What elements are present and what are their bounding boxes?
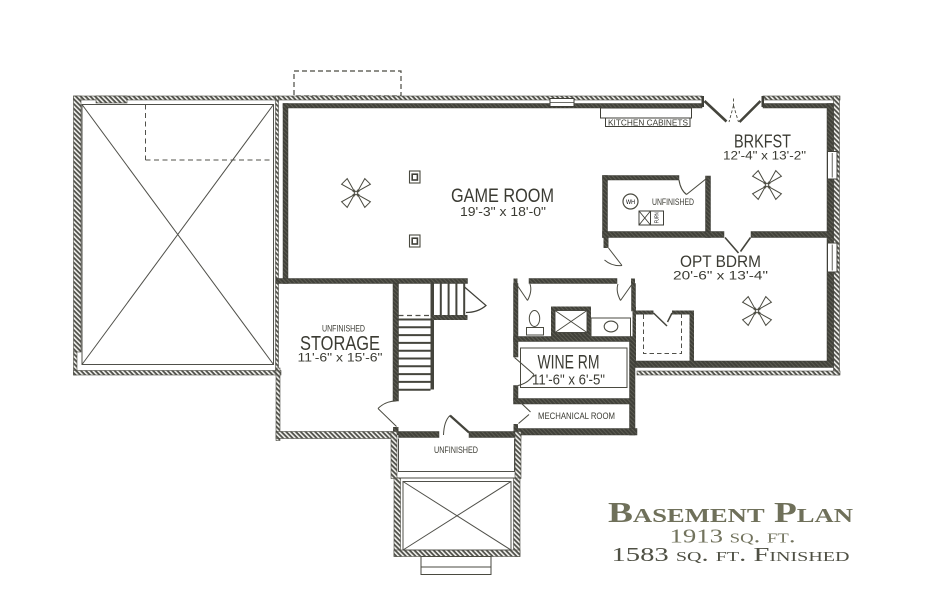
svg-text:MECHANICAL ROOM: MECHANICAL ROOM bbox=[538, 411, 615, 422]
svg-text:19'-3" x 18'-0": 19'-3" x 18'-0" bbox=[460, 204, 546, 219]
svg-text:WINE RM: WINE RM bbox=[538, 352, 600, 374]
svg-text:WH: WH bbox=[626, 200, 635, 206]
svg-text:UNFINISHED: UNFINISHED bbox=[434, 445, 478, 455]
svg-text:11'-6" x 6'-5": 11'-6" x 6'-5" bbox=[532, 372, 605, 389]
svg-text:BRKFST: BRKFST bbox=[734, 132, 791, 152]
svg-text:1583 sq. ft. Finished: 1583 sq. ft. Finished bbox=[612, 544, 850, 566]
svg-text:12'-4" x 13'-2": 12'-4" x 13'-2" bbox=[723, 151, 806, 163]
svg-text:KITCHEN CABINETS: KITCHEN CABINETS bbox=[608, 119, 688, 128]
svg-text:Basement Plan: Basement Plan bbox=[608, 498, 854, 529]
svg-text:FURN: FURN bbox=[655, 212, 661, 223]
svg-text:UNFINISHED: UNFINISHED bbox=[652, 197, 694, 207]
svg-text:UNFINISHED: UNFINISHED bbox=[322, 324, 365, 334]
svg-text:11'-6" x 15'-6": 11'-6" x 15'-6" bbox=[298, 351, 383, 365]
svg-text:20'-6" x 13'-4": 20'-6" x 13'-4" bbox=[673, 269, 768, 283]
